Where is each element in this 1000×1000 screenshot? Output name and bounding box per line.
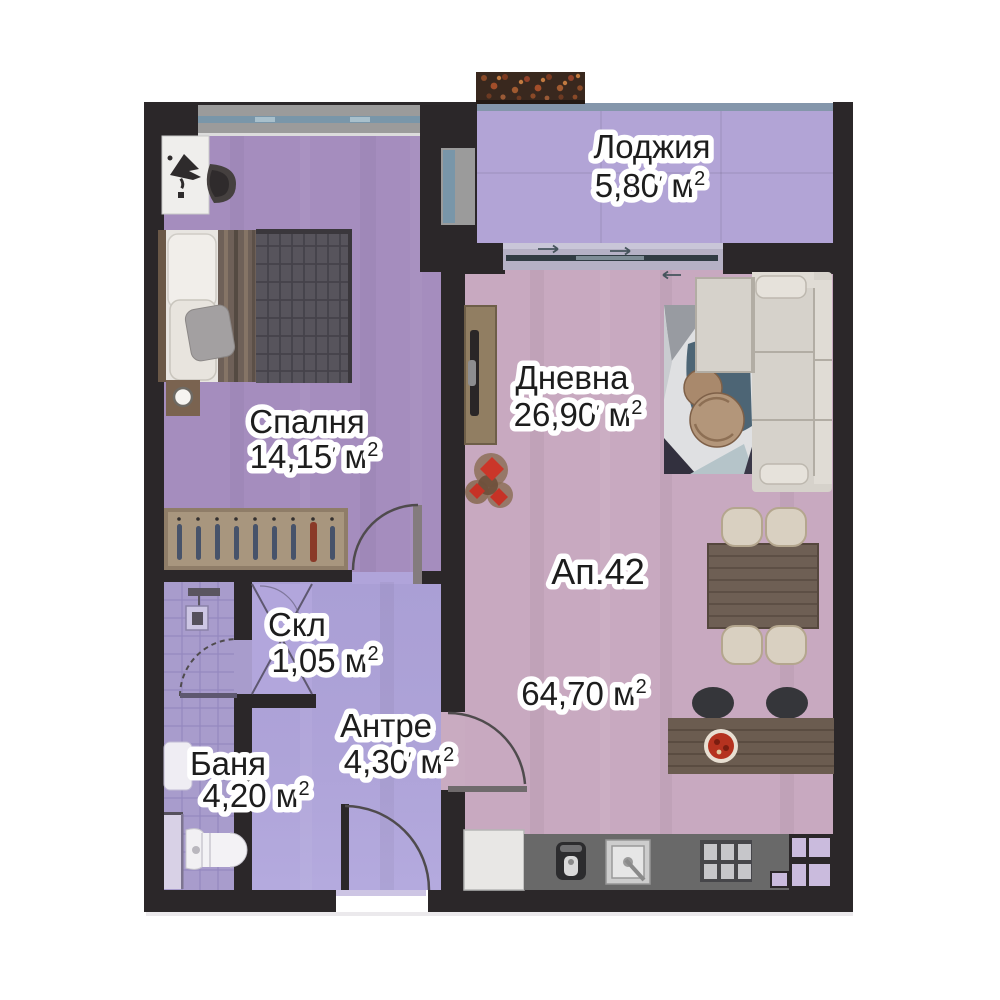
svg-text:Дневна: Дневна [515, 359, 629, 396]
svg-text:26,90′ м2: 26,90′ м2 [514, 396, 643, 433]
svg-text:Лоджия: Лоджия [594, 128, 711, 165]
svg-text:Скл: Скл [268, 606, 326, 643]
svg-text:4,30′ м2: 4,30′ м2 [344, 743, 454, 780]
svg-text:64,70 м2: 64,70 м2 [521, 675, 647, 712]
svg-text:4,20 м2: 4,20 м2 [202, 777, 309, 814]
svg-text:Спалня: Спалня [249, 403, 364, 440]
svg-text:Антре: Антре [340, 707, 432, 744]
svg-text:Ап.42: Ап.42 [551, 551, 645, 592]
svg-text:14,15′ м2: 14,15′ м2 [250, 438, 379, 475]
svg-text:5,80′ м2: 5,80′ м2 [595, 167, 705, 204]
svg-text:1,05 м2: 1,05 м2 [271, 642, 378, 679]
